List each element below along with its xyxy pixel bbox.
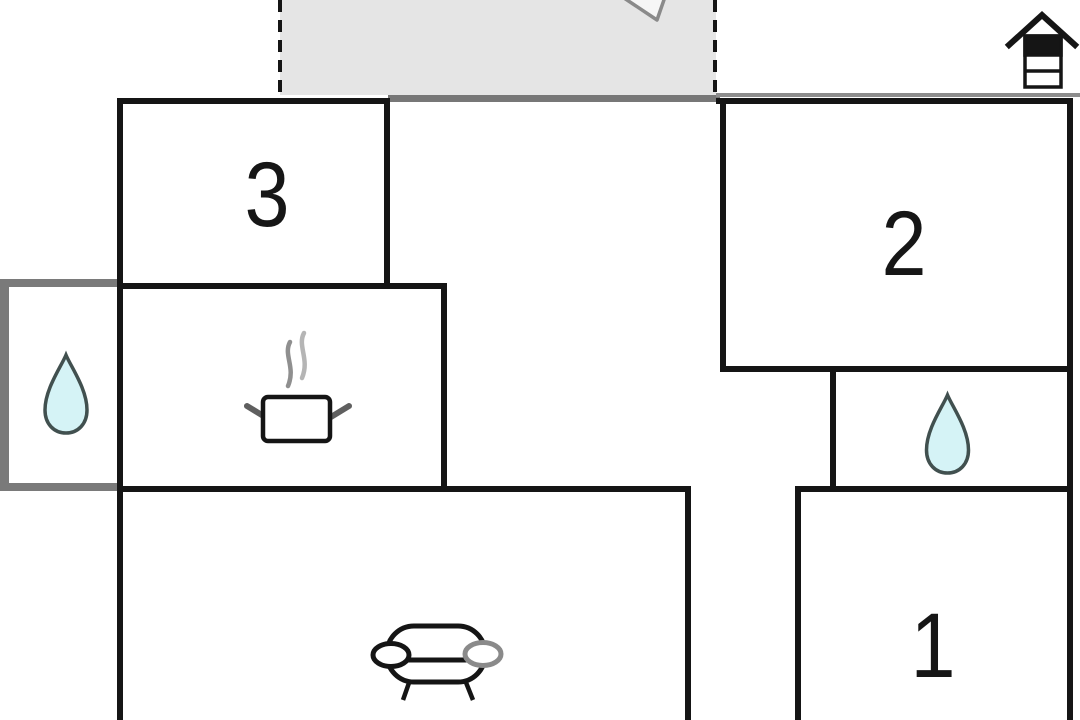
wall	[0, 279, 122, 287]
room-3-label: 3	[244, 149, 289, 241]
hallway	[447, 104, 720, 486]
wall	[685, 486, 691, 720]
terrace-dashed-boundary-left	[278, 0, 282, 97]
cooking-pot-icon	[238, 326, 354, 446]
water-drop-icon	[42, 352, 90, 436]
well-icon	[1006, 11, 1076, 89]
ground-line	[716, 93, 1080, 97]
terrace-edge-wall	[388, 95, 720, 102]
wall	[0, 279, 9, 491]
sofa-icon	[370, 618, 502, 702]
wall	[0, 483, 122, 491]
steam-icon	[288, 333, 305, 386]
parasol-top-icon	[600, 0, 675, 24]
room-1-label: 1	[910, 600, 955, 692]
room-2-label: 2	[881, 198, 926, 290]
water-drop-icon	[923, 392, 972, 476]
floor-plan: 3 2 1	[0, 0, 1080, 720]
wall	[384, 98, 390, 289]
terrace-dashed-boundary-right	[713, 0, 717, 97]
wall	[1067, 98, 1073, 720]
